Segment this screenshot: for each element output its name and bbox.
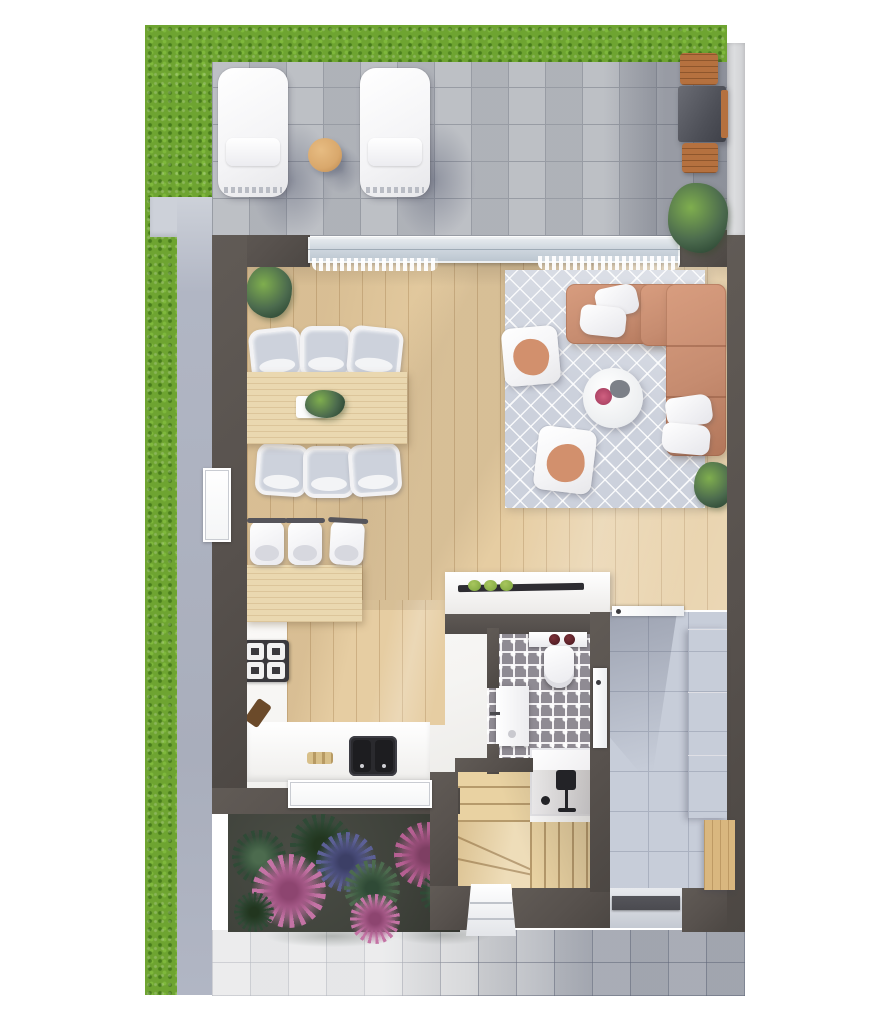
throw-pillow xyxy=(579,304,628,339)
green-jar xyxy=(468,580,481,591)
washbasin-shelf xyxy=(529,632,587,647)
garden-walkway xyxy=(177,197,212,995)
sofa-seam xyxy=(666,345,726,347)
table-centerpiece-plant xyxy=(305,390,345,418)
sun-lounger xyxy=(218,68,288,197)
boundary-wall xyxy=(727,43,745,236)
flower-pink xyxy=(350,894,400,944)
double-sink xyxy=(349,736,397,776)
door-handle xyxy=(596,680,601,685)
green-jar xyxy=(500,580,513,591)
green-jar xyxy=(484,580,497,591)
sheer-curtain-left xyxy=(312,258,438,271)
table-wood-edge xyxy=(721,90,728,138)
wall-stair-side xyxy=(430,772,458,895)
burner xyxy=(246,643,264,660)
step-edge xyxy=(470,902,512,904)
terrace-potted-plant xyxy=(668,183,728,253)
kitchen-counter xyxy=(247,722,430,782)
bathroom-vanity xyxy=(496,686,529,746)
front-door xyxy=(612,896,680,910)
shower-head xyxy=(556,770,576,790)
terrace-table xyxy=(678,86,726,142)
table-decor xyxy=(610,380,630,398)
cooktop xyxy=(243,640,289,682)
toilet xyxy=(544,646,574,688)
wall-bottom-mid xyxy=(512,888,610,928)
kitchen-island-top xyxy=(445,572,610,614)
lawn-left-upper xyxy=(145,25,212,197)
sun-lounger xyxy=(360,68,430,197)
wall-bathroom-left-upper xyxy=(487,628,499,688)
door-handle xyxy=(616,609,621,614)
wall-bathroom-right xyxy=(590,612,610,892)
coffee-table xyxy=(583,368,643,428)
sheer-curtain-right xyxy=(538,256,680,270)
bar-stool xyxy=(250,521,284,565)
lawn-left xyxy=(145,197,177,995)
corner-potted-plant xyxy=(246,266,292,318)
wall-bottom-right xyxy=(682,888,727,932)
burner xyxy=(267,643,285,660)
patio-side-table xyxy=(308,138,342,172)
kitchen-window xyxy=(288,780,432,808)
lounger-base xyxy=(366,187,424,193)
plant-grass-clump xyxy=(234,892,274,932)
burner xyxy=(246,662,264,679)
basin-bowl xyxy=(549,634,560,645)
terrace-chair xyxy=(680,53,718,85)
kitchen-island-front xyxy=(445,614,610,634)
armchair-cushion xyxy=(510,336,552,378)
patio-shadows xyxy=(212,62,727,236)
shower-drain xyxy=(541,796,550,805)
bar-stool xyxy=(288,521,322,565)
pavement-shading xyxy=(212,930,745,996)
lounger-pillow xyxy=(226,138,280,166)
lounger-pillow xyxy=(368,138,422,166)
lounger-base xyxy=(224,187,282,193)
armchair xyxy=(532,425,597,496)
floor-plan-render xyxy=(0,0,874,1024)
step-edge xyxy=(468,918,514,920)
wall-bathroom-bottom xyxy=(455,758,533,772)
kitchen-bar-counter xyxy=(245,565,362,622)
armchair xyxy=(501,325,562,388)
vanity-faucet xyxy=(508,730,516,738)
glass-door-track xyxy=(308,249,680,250)
shoe-bench xyxy=(704,820,735,890)
bathroom-door xyxy=(593,668,607,748)
sink-drain xyxy=(382,764,386,768)
lawn-top xyxy=(145,25,727,67)
dining-chair xyxy=(300,326,352,378)
dining-chair xyxy=(347,442,403,498)
dining-chair xyxy=(254,442,310,498)
throw-pillow xyxy=(661,422,711,456)
side-window xyxy=(203,468,231,542)
burner xyxy=(267,662,285,679)
dining-table xyxy=(243,372,407,444)
terrace-chair xyxy=(682,143,718,173)
sink-drain xyxy=(360,764,364,768)
entry-step xyxy=(466,884,516,936)
shower-base xyxy=(558,808,576,812)
front-door-opening xyxy=(610,888,682,928)
hallway-wardrobe xyxy=(688,628,727,818)
living-hall-door-threshold xyxy=(612,606,684,616)
bar-stool xyxy=(329,520,365,566)
armchair-cushion xyxy=(546,443,586,483)
basin-bowl xyxy=(564,634,575,645)
counter-jars xyxy=(307,752,333,764)
vanity-handle xyxy=(490,712,500,715)
